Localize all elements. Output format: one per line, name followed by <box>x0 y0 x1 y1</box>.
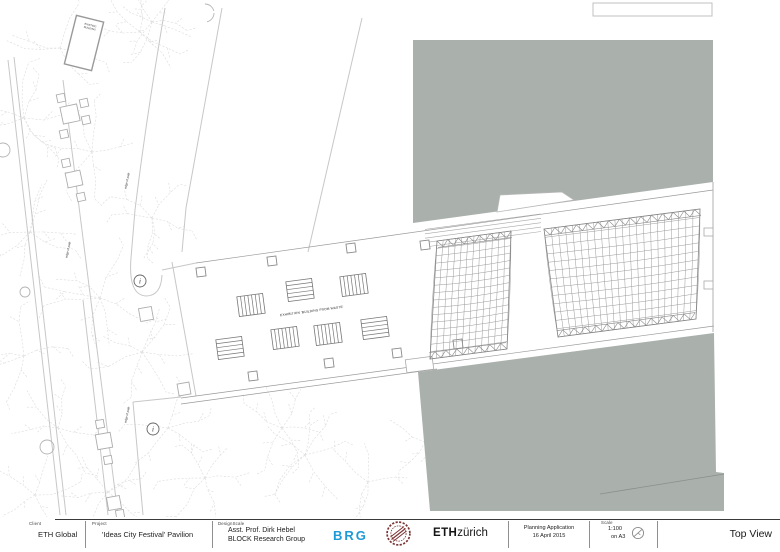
tree-trunk-circle <box>20 287 30 297</box>
design-line2: BLOCK Research Group <box>228 536 305 545</box>
adjacent-building-outline <box>593 3 712 16</box>
scale-sheet: on A3 <box>611 534 625 540</box>
site-furniture <box>56 93 191 517</box>
exhibition-benches <box>216 273 389 359</box>
tree-trunk-circle <box>196 4 214 22</box>
existing-structure: EXISTINGBUILDING <box>64 15 103 70</box>
svg-text:i: i <box>152 426 154 434</box>
path-label: edge of path <box>64 241 71 258</box>
building-entry-notch <box>497 192 574 212</box>
titleblock-divider <box>212 521 213 548</box>
brg-logo: BRG <box>333 528 368 543</box>
info-marker: i <box>134 275 146 287</box>
planning-application-field: Planning Application16 April 2015 <box>509 525 589 540</box>
street-trees <box>0 0 468 517</box>
project-value: 'Ideas City Festival' Pavilion <box>102 530 193 539</box>
project-label: Project <box>92 521 107 526</box>
canopy-grid-panel <box>544 209 701 337</box>
client-label: Client <box>29 521 41 526</box>
canopy-grid-panel <box>429 231 512 359</box>
path-label: edge of path <box>123 172 130 189</box>
brg-stamp-icon <box>385 520 412 547</box>
path-label: edge of path <box>123 406 130 423</box>
view-title: Top View <box>660 528 772 540</box>
design-line1: Asst. Prof. Dirk Hebel <box>228 527 295 536</box>
steps-line <box>425 218 541 234</box>
street-lines <box>0 4 362 515</box>
north-arrow-icon <box>631 526 645 540</box>
titleblock-divider <box>85 521 86 548</box>
titleblock-divider <box>657 521 658 548</box>
exhibition-label: EXHIBITION 'BUILDING FROM WASTE' <box>280 305 344 317</box>
tree-trunk-circle <box>0 143 10 157</box>
titleblock-divider <box>589 521 590 548</box>
plan-sheet: EXISTINGBUILDINGiiEXHIBITION 'BUILDING F… <box>0 0 780 552</box>
svg-text:i: i <box>139 278 141 286</box>
site-plan-drawing: EXISTINGBUILDINGiiEXHIBITION 'BUILDING F… <box>0 0 780 517</box>
eth-zurich-logo: ETHzürich <box>433 527 488 539</box>
wall-pilaster <box>704 281 713 289</box>
titleblock-border <box>55 519 780 520</box>
scale-value: 1:100 <box>608 526 622 532</box>
design-label: DesignScale <box>218 521 244 526</box>
scale-label: Scale <box>601 520 613 525</box>
wall-pilaster <box>704 228 713 236</box>
steps-line <box>425 223 541 239</box>
steps-line <box>425 232 541 248</box>
client-value: ETH Global <box>38 530 77 539</box>
path-loop <box>131 8 165 296</box>
info-marker: i <box>147 423 159 435</box>
